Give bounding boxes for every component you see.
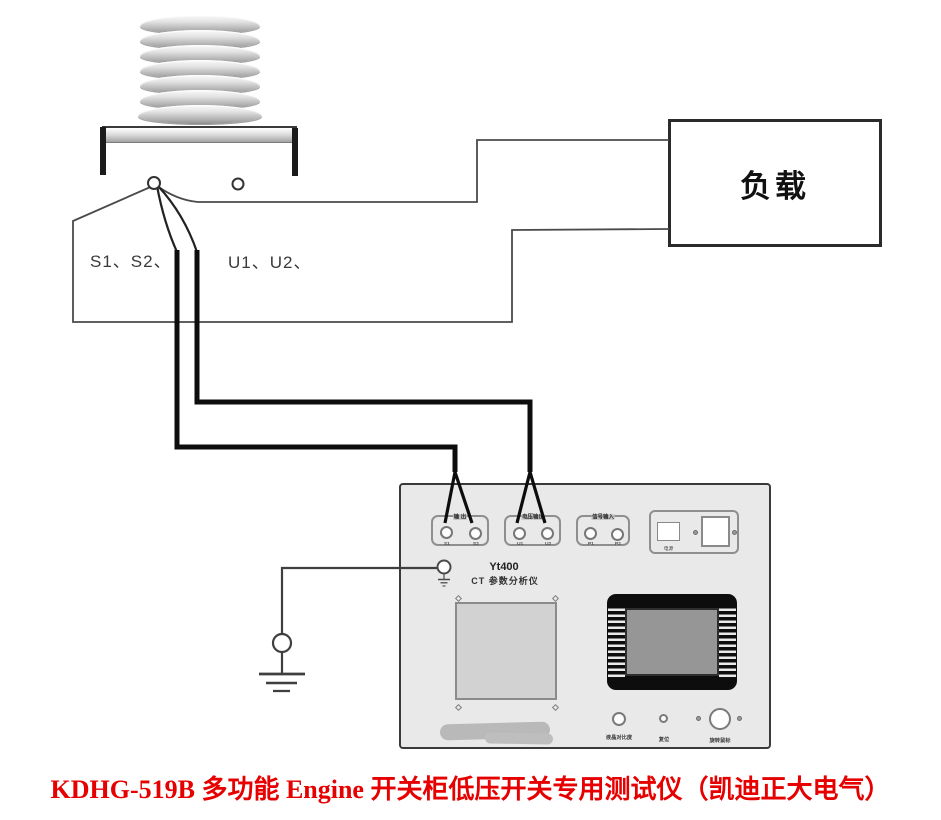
model-name: Yt400 bbox=[464, 561, 544, 573]
screw-icon bbox=[455, 704, 462, 711]
contrast-label: 液晶对比度 bbox=[606, 734, 632, 741]
rotary-mouse-label: 旋转鼠标 bbox=[709, 737, 730, 744]
primary-terminals-label: U1、U2、 bbox=[228, 248, 311, 273]
power-socket bbox=[701, 516, 730, 547]
terminal-u2-label: U2 bbox=[545, 541, 551, 547]
screw-icon bbox=[552, 595, 559, 602]
terminal-group-p-label: 信号输入 bbox=[591, 514, 614, 519]
terminal-p1-label: P1 bbox=[588, 541, 594, 547]
lcd-screen bbox=[625, 608, 719, 676]
lead-s-curve bbox=[157, 186, 177, 252]
instrument-panel: 输 出 S1 S2 电压输出 U1 U2 信号输入 P1 P2 电源 bbox=[399, 483, 771, 749]
terminal-group-u: 电压输出 U1 U2 bbox=[504, 515, 561, 546]
rotary-mouse-knob bbox=[709, 708, 731, 730]
bushing-terminal-left bbox=[148, 177, 160, 189]
model-subtitle: CT 参数分析仪 bbox=[449, 574, 561, 587]
secondary-terminals-label: S1、S2、 bbox=[90, 247, 172, 272]
terminal-p2 bbox=[611, 528, 624, 541]
display-fins-right bbox=[719, 605, 736, 679]
flange-left-cap bbox=[100, 127, 106, 175]
terminal-s2-label: S2 bbox=[473, 541, 479, 547]
screw-icon bbox=[732, 530, 737, 535]
power-switch bbox=[657, 522, 680, 541]
power-label: 电源 bbox=[662, 545, 676, 552]
terminal-group-p: 信号输入 P1 P2 bbox=[576, 515, 630, 546]
display-fins-left bbox=[608, 605, 625, 679]
cable-u bbox=[197, 250, 530, 472]
screw-icon bbox=[737, 716, 742, 721]
flange-right-cap bbox=[292, 128, 298, 176]
terminal-p1 bbox=[584, 527, 597, 540]
wiring-diagram: S1、S2、 U1、U2、 负载 输 出 S1 S2 电压输出 U1 U2 信号… bbox=[0, 0, 941, 820]
lead-u-curve bbox=[158, 186, 197, 252]
lcd-display bbox=[607, 594, 737, 690]
screw-icon bbox=[552, 704, 559, 711]
contrast-knob bbox=[612, 712, 626, 726]
wire-primary-loop bbox=[156, 140, 669, 202]
printer-panel bbox=[455, 602, 557, 700]
power-section: 电源 bbox=[649, 510, 739, 554]
terminal-group-u-label: 电压输出 bbox=[521, 514, 544, 519]
blurred-text bbox=[485, 732, 553, 744]
terminal-p2-label: P2 bbox=[615, 541, 621, 547]
terminal-group-s-label: 输 出 bbox=[453, 514, 467, 519]
terminal-u2 bbox=[541, 527, 554, 540]
load-label: 负载 bbox=[740, 161, 810, 206]
terminal-s2 bbox=[469, 527, 482, 540]
load-box: 负载 bbox=[668, 119, 882, 247]
reset-label: 复位 bbox=[659, 736, 670, 743]
screw-icon bbox=[455, 595, 462, 602]
earth-clamp bbox=[273, 634, 291, 652]
bushing-terminal-right bbox=[233, 179, 244, 190]
cable-s bbox=[177, 250, 455, 472]
screw-icon bbox=[696, 716, 701, 721]
reset-button bbox=[659, 714, 668, 723]
screw-icon bbox=[693, 530, 698, 535]
terminal-u1-label: U1 bbox=[517, 541, 523, 547]
bushing-flange bbox=[102, 126, 297, 143]
terminal-s1-label: S1 bbox=[444, 541, 450, 547]
terminal-group-s: 输 出 S1 S2 bbox=[431, 515, 489, 546]
terminal-u1 bbox=[513, 527, 526, 540]
ground-symbol bbox=[259, 674, 305, 691]
caption: KDHG-519B 多功能 Engine 开关柜低压开关专用测试仪（凯迪正大电气… bbox=[0, 769, 941, 806]
bushing-rib bbox=[138, 105, 262, 124]
terminal-s1 bbox=[440, 526, 453, 539]
